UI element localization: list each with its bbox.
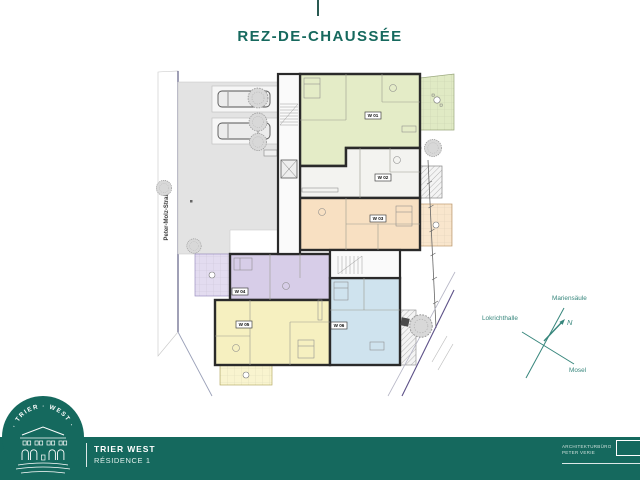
landmark-label-mariensaeule: Mariensäule	[552, 295, 587, 302]
project-subtitle: RÉSIDENCE 1	[94, 456, 155, 465]
svg-text:W 02: W 02	[378, 175, 389, 180]
compass-diagram: N Mariensäule Lokrichthalle Mosel	[466, 286, 640, 394]
logo-badge: · TRIER · WEST ·	[0, 392, 90, 480]
unit-label-w06: W 06	[331, 322, 347, 329]
svg-text:W 03: W 03	[373, 216, 384, 221]
architect-credit-line1: ARCHITEKTURBÜRO	[562, 444, 612, 450]
stair-core	[330, 250, 400, 278]
street-label: Peter-Molz-Straße	[164, 189, 170, 241]
svg-text:W 01: W 01	[368, 113, 379, 118]
unit-w06	[330, 278, 400, 365]
footer-divider	[86, 443, 87, 467]
terrace-yellow	[220, 365, 272, 385]
floor-plan: Peter-Molz-Straße	[150, 60, 460, 400]
architect-credit-line2: PETER VERIE	[562, 450, 612, 456]
page: REZ-DE-CHAUSSÉE Peter-Molz-Straße	[0, 0, 640, 480]
terrace-orange	[420, 204, 452, 246]
north-label: N	[567, 318, 573, 327]
svg-text:W 06: W 06	[334, 323, 345, 328]
unit-label-w04: W 04	[232, 288, 248, 295]
svg-text:W 05: W 05	[239, 322, 250, 327]
top-tick-line	[317, 0, 319, 16]
unit-label-w01: W 01	[365, 112, 381, 119]
unit-w05	[215, 300, 330, 365]
unit-label-w05: W 05	[236, 321, 252, 328]
page-title: REZ-DE-CHAUSSÉE	[0, 28, 640, 45]
footer-frame	[616, 440, 640, 456]
unit-label-w02: W 02	[375, 174, 391, 181]
north-arrow-icon	[544, 322, 562, 341]
terrace-purple	[195, 254, 230, 296]
architect-credit: ARCHITEKTURBÜRO PETER VERIE	[562, 444, 612, 455]
svg-text:W 04: W 04	[235, 289, 246, 294]
terrace-green	[420, 74, 454, 130]
footer-rule	[562, 463, 640, 464]
project-name: TRIER WEST	[94, 444, 155, 454]
landmark-label-lokrichthalle: Lokrichthalle	[482, 315, 518, 322]
unit-label-w03: W 03	[370, 215, 386, 222]
landmark-label-mosel: Mosel	[569, 367, 586, 374]
